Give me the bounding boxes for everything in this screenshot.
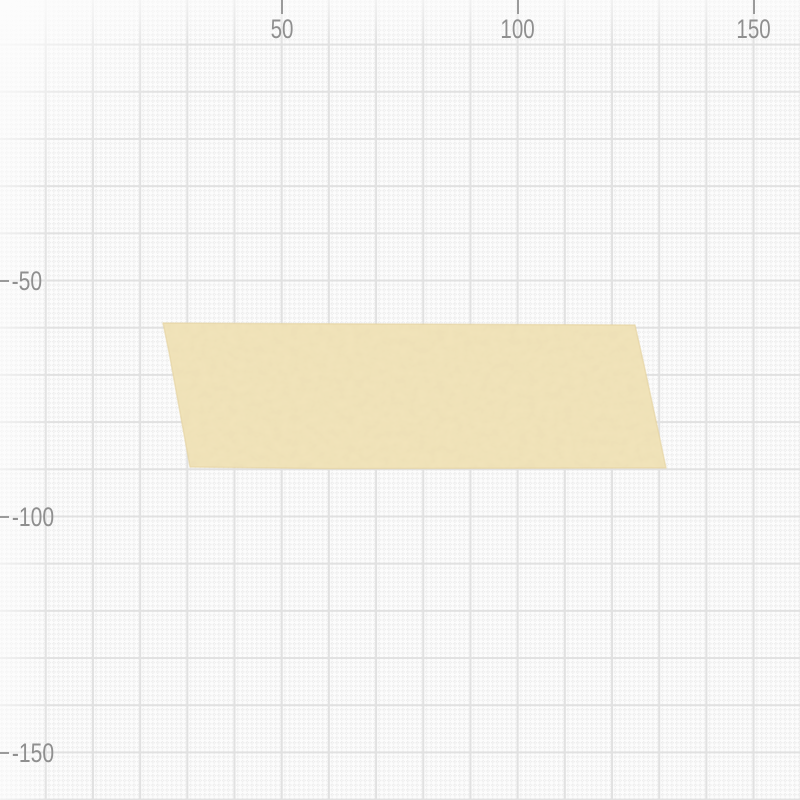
y-ruler-label-2-text: -150 [12,739,54,767]
x-ruler-label-1-text: 100 [501,16,535,43]
x-ruler-label-0: 50 [242,16,322,43]
canvas-viewport[interactable]: 50 100 150 -50 -100 -150 [0,0,800,800]
y-ruler-label-0: -50 [0,267,42,295]
x-ruler-label-0-text: 50 [271,16,294,43]
x-ruler-label-2-text: 150 [737,16,771,43]
x-ruler-label-2: 150 [714,16,794,43]
x-ruler-tick-1 [517,0,519,14]
tape-shape[interactable] [163,323,666,469]
y-ruler-label-1: -100 [0,503,42,531]
x-ruler-tick-0 [281,0,283,14]
x-ruler-tick-2 [753,0,755,14]
x-ruler-label-1: 100 [478,16,558,43]
y-ruler-label-0-text: -50 [12,267,42,295]
objects-layer [0,0,800,800]
y-ruler-label-2: -150 [0,739,42,767]
y-ruler-label-1-text: -100 [12,503,54,531]
